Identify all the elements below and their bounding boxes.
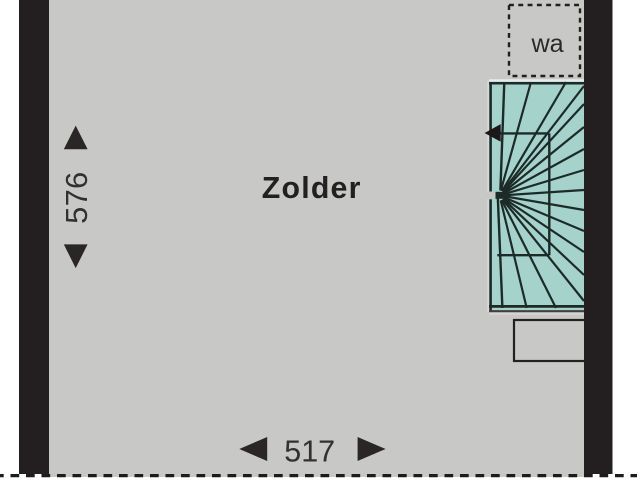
svg-text:576: 576 xyxy=(59,172,94,224)
svg-text:517: 517 xyxy=(284,434,335,468)
svg-text:Zolder: Zolder xyxy=(262,172,362,205)
svg-text:wa: wa xyxy=(530,30,564,58)
